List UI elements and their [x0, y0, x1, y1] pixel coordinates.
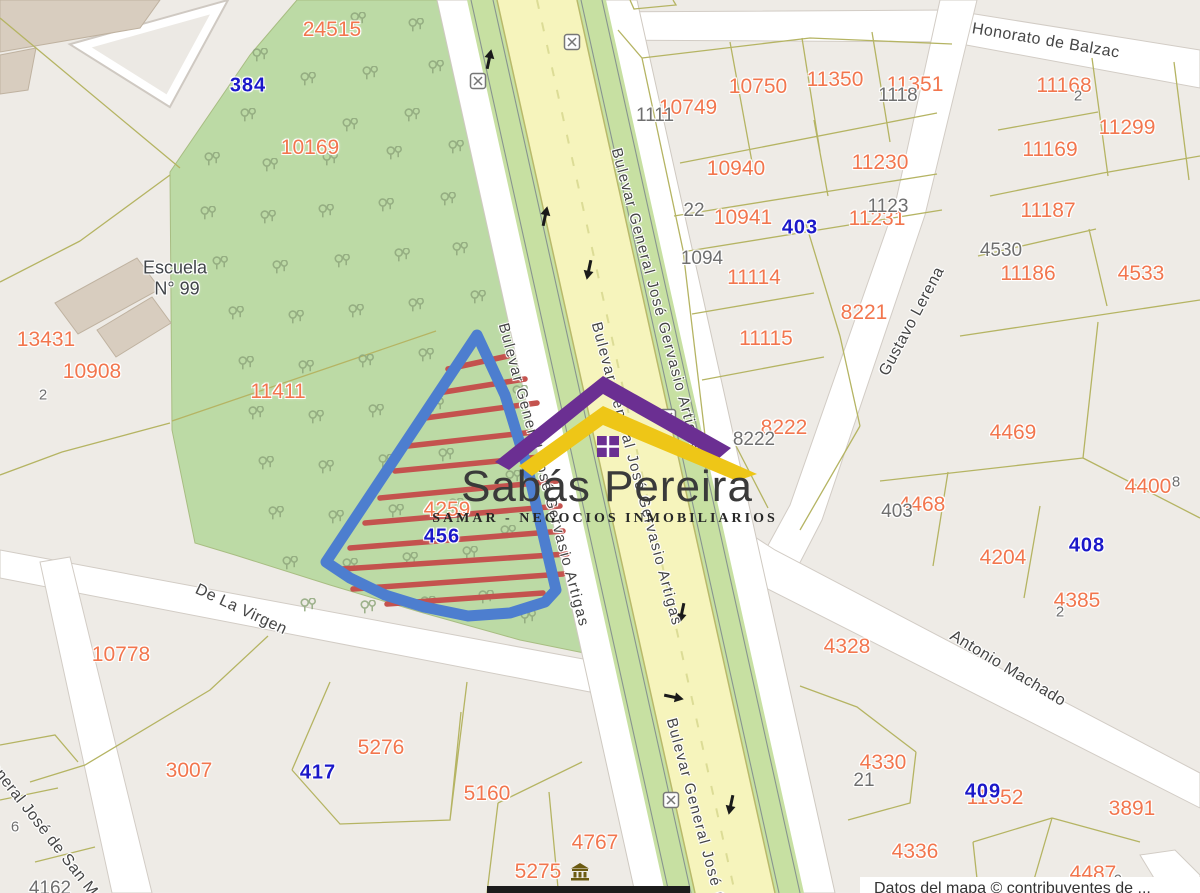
logo-name: Sabás Pereira — [461, 462, 753, 512]
scale-bar — [487, 886, 690, 893]
map-canvas[interactable]: 2451510169134311090811411425910749107501… — [0, 0, 1200, 893]
map-attribution: Datos del mapa © contribuyentes de ... — [860, 877, 1200, 893]
logo-tagline: SAMAR - NEGOCIOS INMOBILIARIOS — [432, 511, 778, 527]
logo-house-icon — [0, 0, 1200, 893]
attribution-text: Datos del mapa © contribuyentes de ... — [874, 880, 1200, 893]
logo-window — [597, 436, 619, 457]
